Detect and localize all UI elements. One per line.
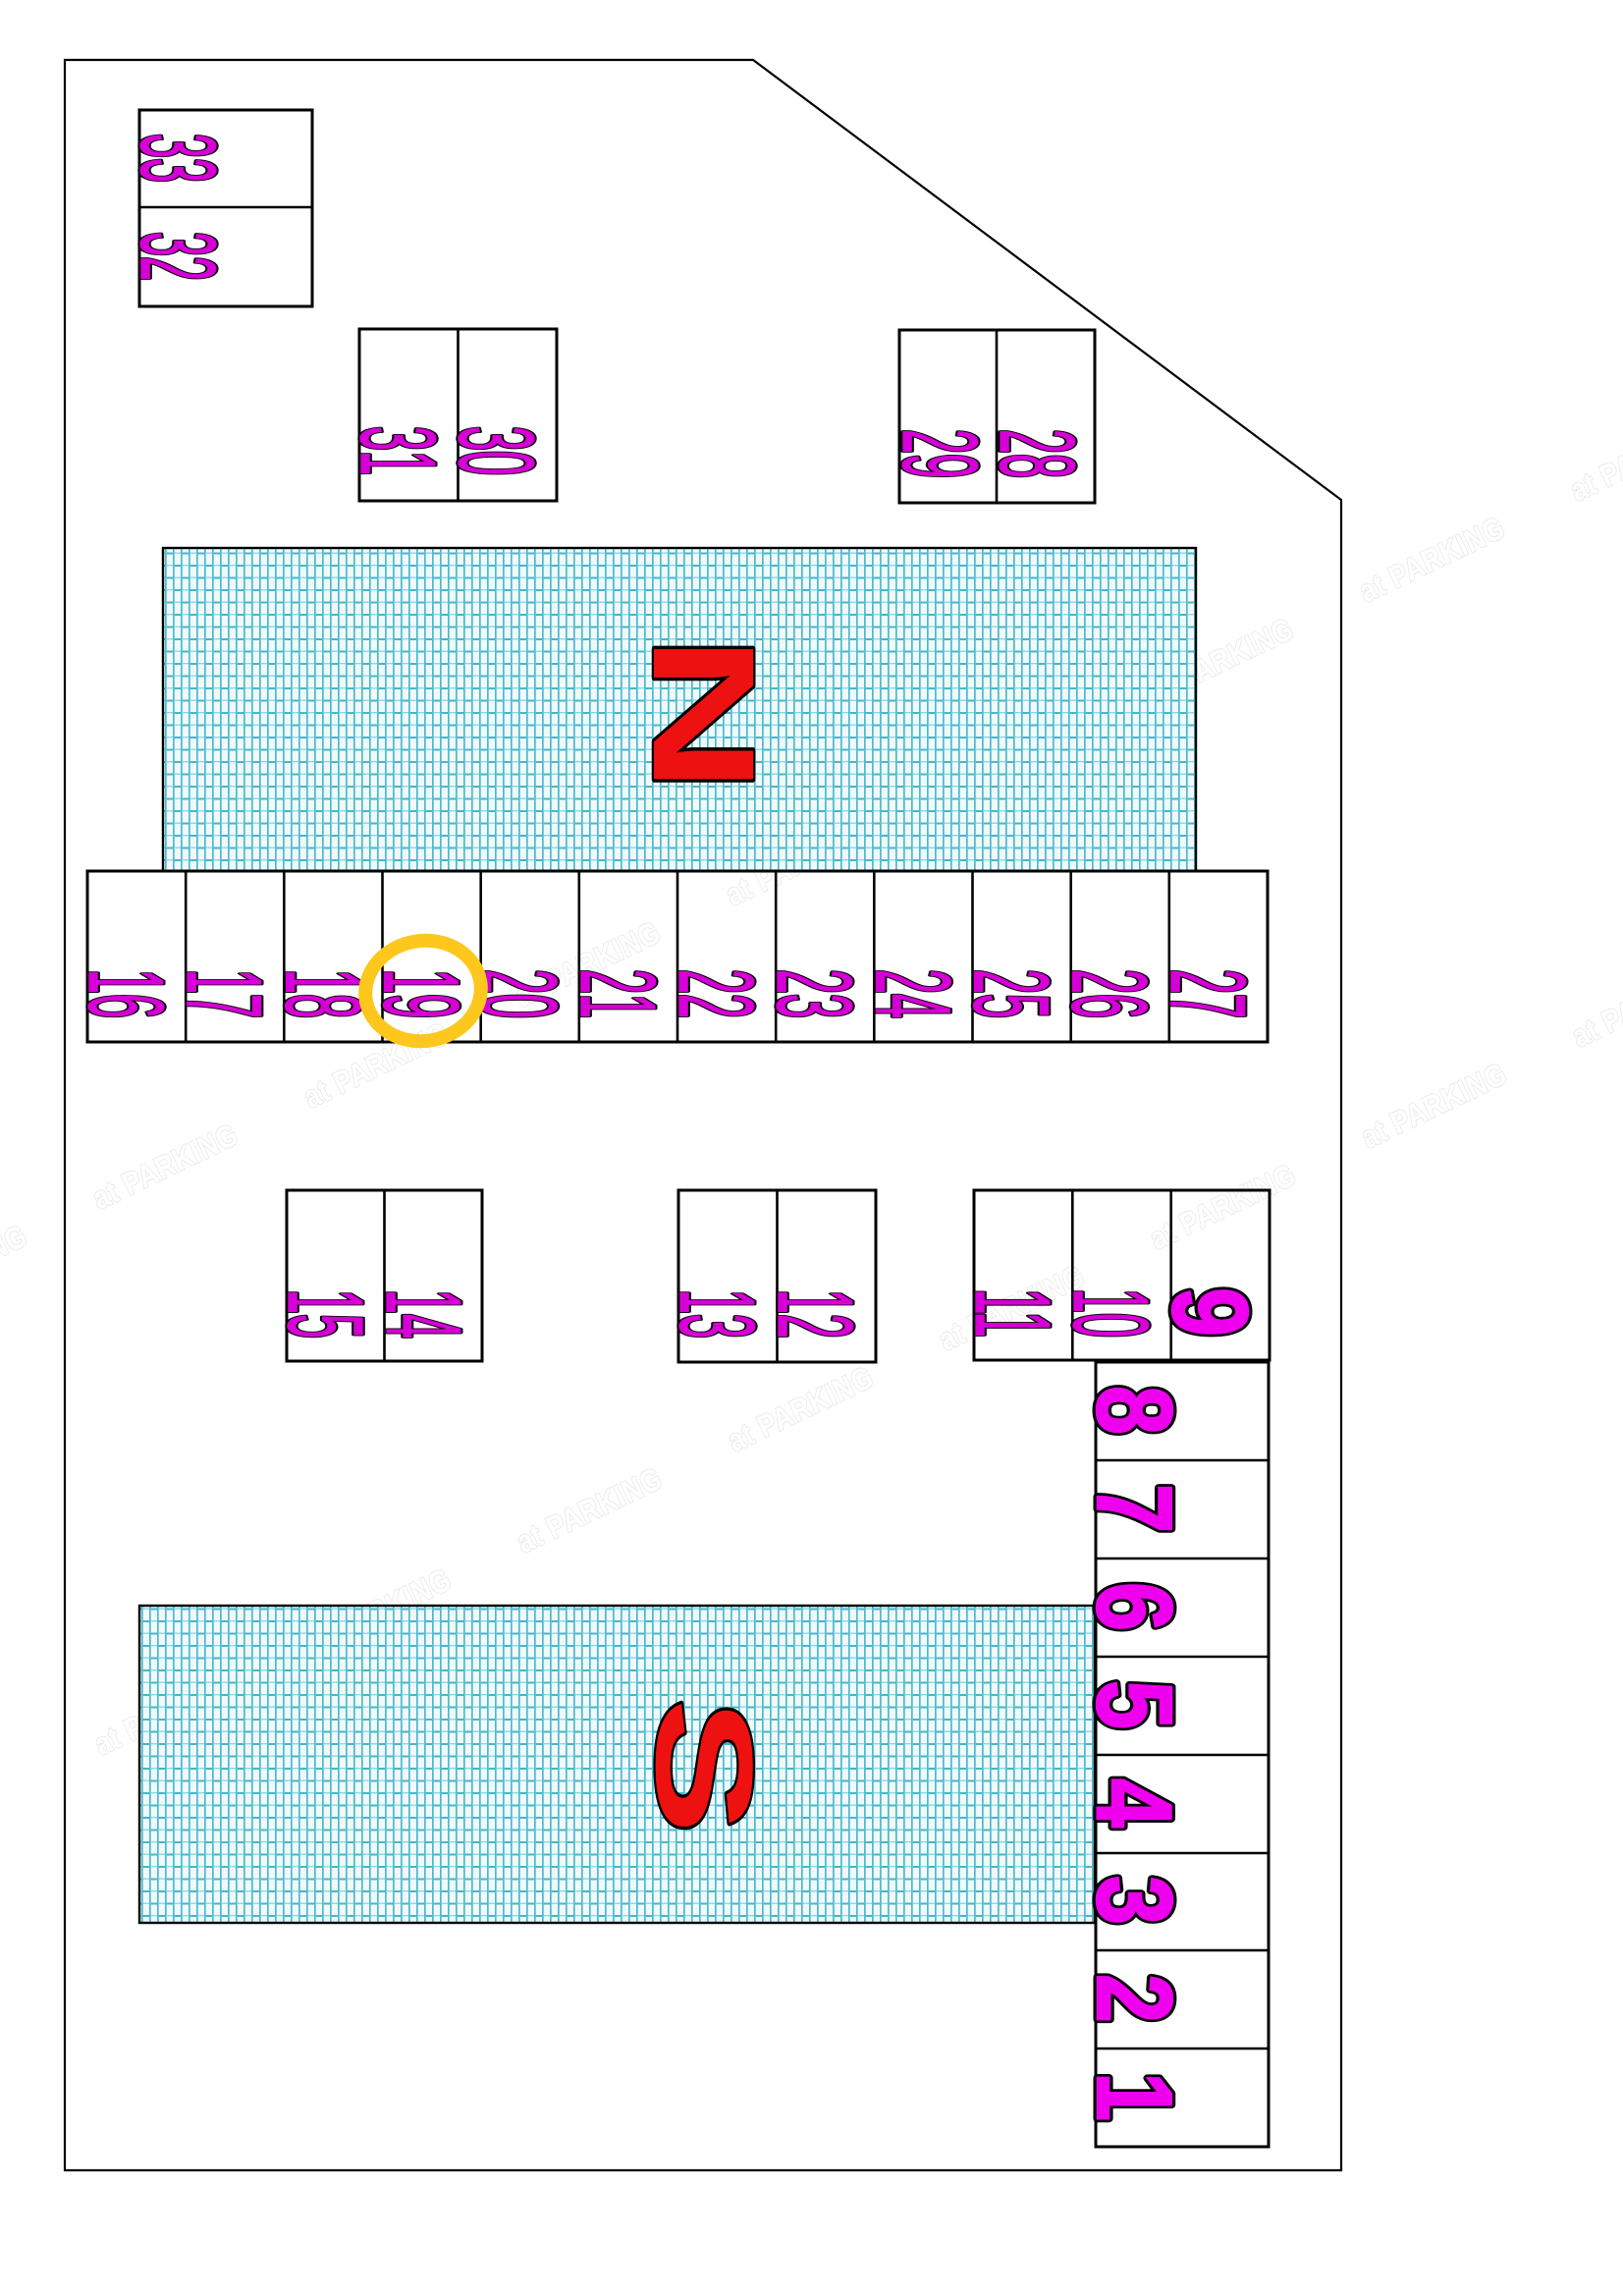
svg-text:32: 32 [118,232,238,281]
svg-text:2: 2 [1074,1974,1194,2023]
svg-text:3: 3 [1074,1876,1194,1925]
svg-text:6: 6 [1074,1582,1194,1631]
svg-text:33: 33 [118,134,238,183]
svg-text:12: 12 [755,1289,875,1339]
svg-text:8: 8 [1074,1386,1194,1435]
svg-text:7: 7 [1074,1484,1194,1533]
svg-text:N: N [622,634,784,793]
svg-text:4: 4 [1074,1778,1194,1828]
svg-text:S: S [627,1698,782,1834]
svg-text:14: 14 [363,1289,483,1339]
svg-text:5: 5 [1074,1680,1194,1729]
svg-text:30: 30 [436,426,556,475]
svg-text:28: 28 [977,429,1097,478]
svg-text:1: 1 [1074,2072,1194,2121]
svg-text:9: 9 [1150,1287,1270,1337]
svg-text:27: 27 [1148,969,1268,1018]
